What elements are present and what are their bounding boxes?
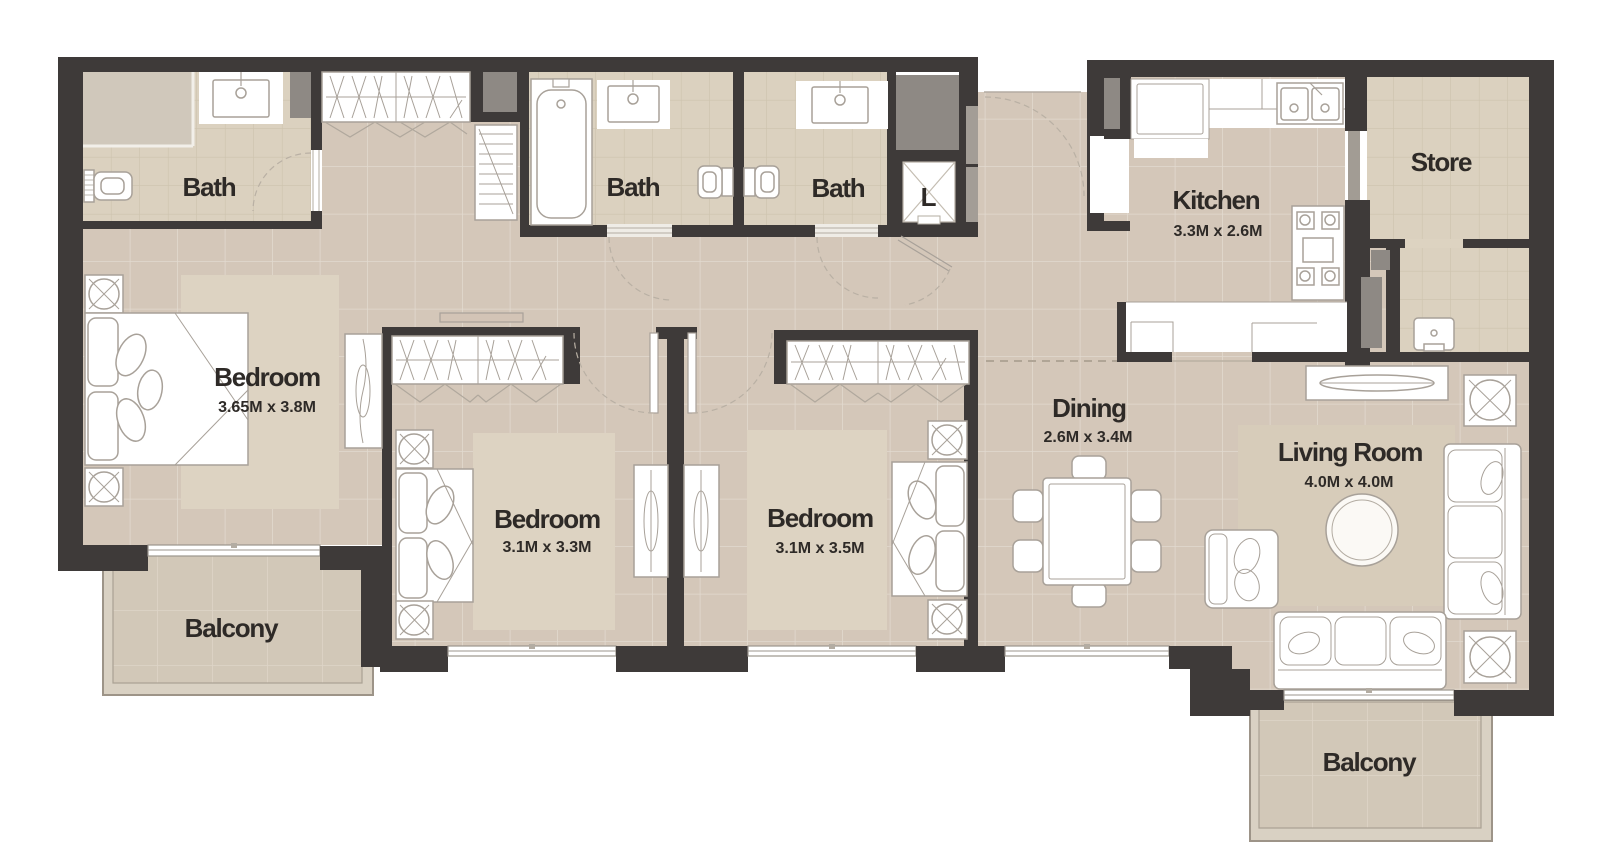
- svg-text:Bedroom: Bedroom: [214, 362, 320, 392]
- svg-text:3.65M x 3.8M: 3.65M x 3.8M: [218, 399, 316, 416]
- svg-text:Balcony: Balcony: [185, 613, 279, 643]
- svg-text:3.1M x 3.5M: 3.1M x 3.5M: [776, 540, 865, 557]
- svg-text:Bedroom: Bedroom: [767, 503, 873, 533]
- svg-text:L: L: [921, 182, 937, 212]
- svg-text:3.3M x 2.6M: 3.3M x 2.6M: [1174, 223, 1263, 240]
- svg-text:3.1M x 3.3M: 3.1M x 3.3M: [503, 539, 592, 556]
- svg-text:4.0M x 4.0M: 4.0M x 4.0M: [1305, 474, 1394, 491]
- svg-text:Living Room: Living Room: [1278, 437, 1422, 467]
- svg-text:Bath: Bath: [607, 172, 660, 202]
- svg-text:Balcony: Balcony: [1323, 747, 1417, 777]
- svg-text:Kitchen: Kitchen: [1173, 185, 1260, 215]
- svg-text:Dining: Dining: [1052, 393, 1126, 423]
- svg-text:Store: Store: [1411, 147, 1472, 177]
- svg-text:Bath: Bath: [183, 172, 236, 202]
- svg-text:2.6M x 3.4M: 2.6M x 3.4M: [1044, 429, 1133, 446]
- svg-text:Bath: Bath: [812, 173, 865, 203]
- svg-text:Bedroom: Bedroom: [494, 504, 600, 534]
